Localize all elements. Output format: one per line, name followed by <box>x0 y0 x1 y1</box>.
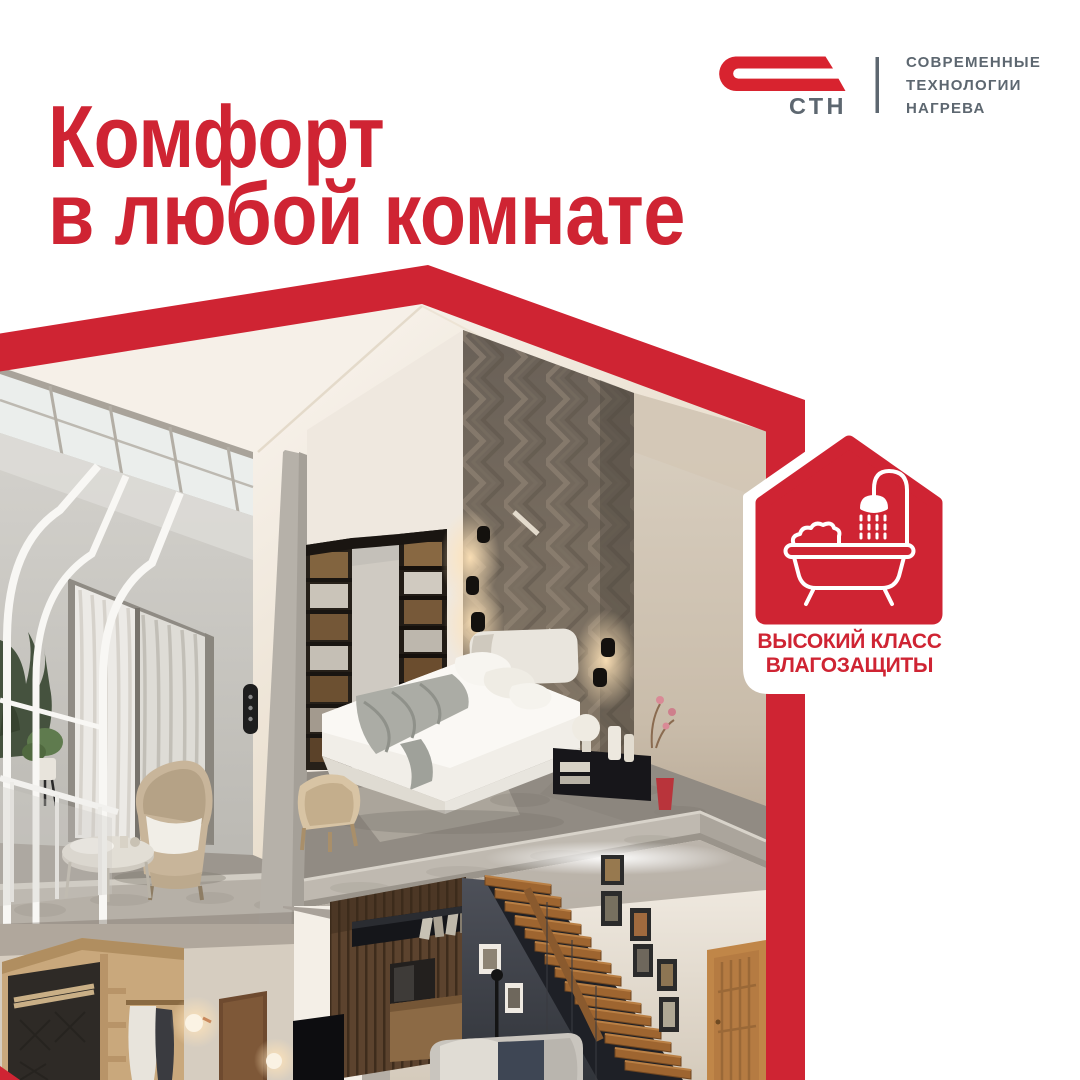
svg-text:СТН: СТН <box>789 93 847 119</box>
